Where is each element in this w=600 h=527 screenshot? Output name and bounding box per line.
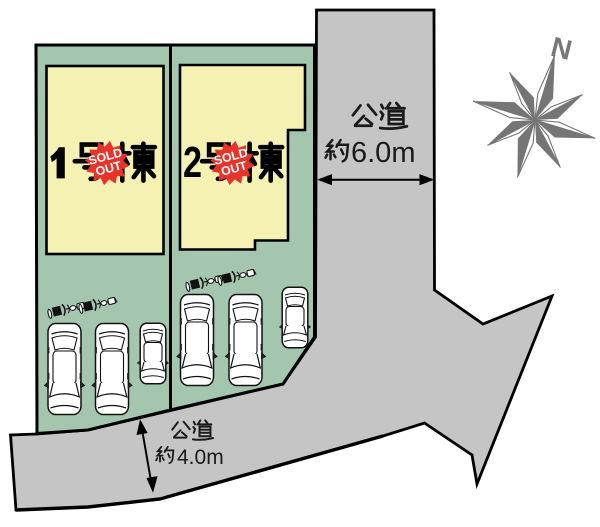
svg-text:2: 2: [183, 138, 202, 187]
svg-text:4.0m: 4.0m: [177, 446, 224, 469]
svg-text:N: N: [548, 31, 575, 66]
svg-text:6.0m: 6.0m: [351, 137, 415, 169]
